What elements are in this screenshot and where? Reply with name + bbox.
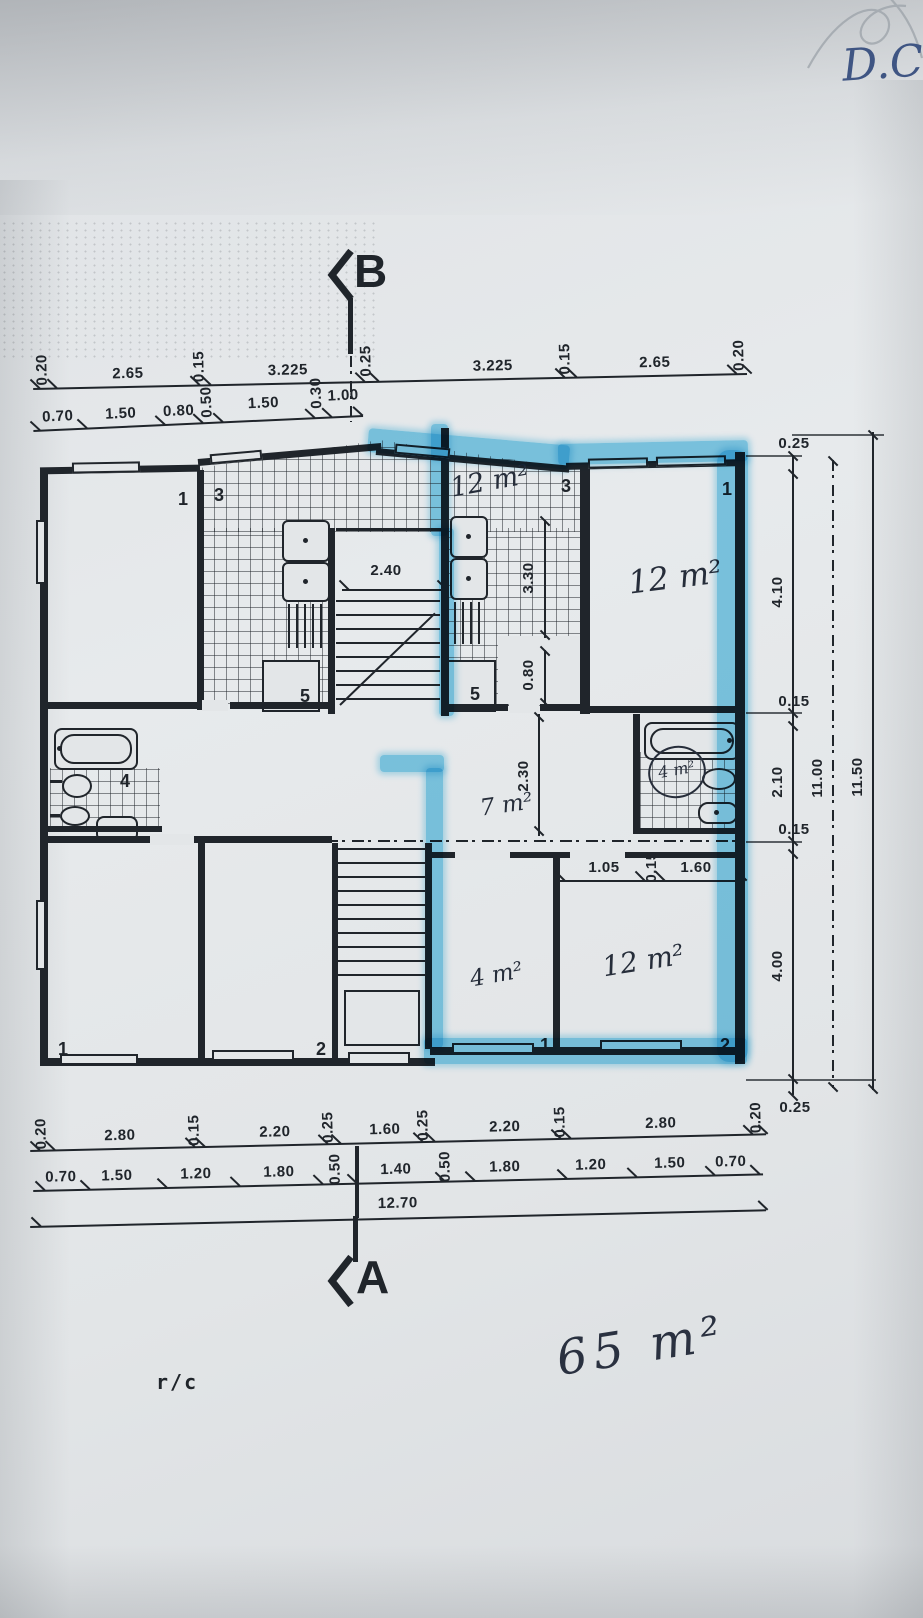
dim-label: 2.20 — [259, 1124, 291, 1141]
floor-plan-photo: D.C B 0.20 2.65 0.15 3.225 0.25 3.225 0.… — [0, 0, 923, 1618]
dim-label: 0.25 — [778, 436, 809, 453]
dim-label: 0.50 — [198, 386, 216, 418]
highlight-divider-kitchen — [439, 528, 454, 716]
section-marker-a: A — [326, 1250, 416, 1310]
sink-drain — [466, 534, 471, 539]
dim-label: 2.10 — [770, 766, 787, 797]
wall-kitchen-bottom-a — [448, 704, 508, 711]
paper-shade-left — [0, 180, 70, 1618]
room-number: 3 — [214, 486, 224, 504]
dim-line — [792, 455, 794, 1095]
highlight-bottom-wall — [424, 1038, 747, 1064]
wall-kitchen-right — [580, 464, 590, 714]
dim-label: 0.15 — [778, 694, 809, 711]
dim-label: 0.80 — [521, 659, 538, 690]
stair-landing-wall — [336, 528, 446, 531]
dim-label: 1.50 — [247, 395, 279, 413]
dim-label: 0.25 — [320, 1111, 337, 1143]
dim-label: 0.20 — [33, 1118, 50, 1150]
entry-box — [344, 990, 420, 1046]
window — [212, 1050, 294, 1061]
dim-line — [342, 589, 444, 591]
dim-chain-right-overall: 11.50 — [866, 432, 884, 1102]
dim-label: 2.65 — [112, 366, 144, 383]
dim-label: 0.15 — [644, 851, 661, 882]
dim-label: 0.50 — [327, 1153, 344, 1185]
room-area-note: 12 m² — [600, 938, 686, 983]
room-number: 1 — [58, 1040, 68, 1058]
dim-label: 3.225 — [473, 358, 513, 375]
dim-label: 1.60 — [369, 1122, 401, 1139]
room-number: 3 — [561, 477, 571, 495]
room-number: 1 — [178, 490, 188, 508]
vent-lines — [288, 604, 328, 648]
dim-label: 0.15 — [778, 822, 809, 839]
room-area-note: 12 m² — [626, 552, 724, 601]
window — [36, 520, 46, 584]
chevron-left-icon — [326, 1254, 354, 1308]
highlight-divider-upper — [431, 424, 448, 536]
dim-label: 3.30 — [521, 562, 538, 593]
dim-extension — [792, 434, 884, 436]
section-letter-b: B — [354, 248, 387, 294]
dim-label: 0.25 — [415, 1109, 432, 1141]
wall-bath-left-bottom — [46, 826, 162, 832]
dim-line — [538, 714, 540, 836]
window — [36, 900, 46, 970]
section-marker-b: B — [326, 246, 416, 306]
dim-label: 2.80 — [645, 1115, 677, 1132]
dim-extension — [746, 712, 802, 714]
dim-chain-bottom-total: 12.70 — [30, 1189, 770, 1232]
vent-lines — [454, 602, 486, 644]
section-letter-a: A — [356, 1254, 389, 1300]
wall-mid-left-b — [230, 702, 330, 709]
dim-label: 0.15 — [552, 1106, 569, 1138]
room-number: 5 — [470, 685, 480, 703]
dim-label: 1.80 — [489, 1159, 521, 1176]
handwriting-initials: D.C — [840, 35, 923, 92]
dim-label: 0.15 — [191, 351, 208, 383]
dim-label: 3.225 — [268, 362, 308, 379]
dim-label: 0.70 — [45, 1169, 77, 1186]
dim-extension — [746, 455, 802, 457]
dim-label: 0.15 — [557, 343, 574, 375]
section-axis-a-thin — [355, 1146, 359, 1218]
dim-chain-top-row2: 0.70 1.50 0.80 0.50 1.50 0.30 1.00 — [32, 393, 368, 436]
dim-label: 1.00 — [327, 387, 359, 405]
dim-line — [832, 460, 834, 1088]
dim-chain-top-row1: 0.20 2.65 0.15 3.225 0.25 3.225 0.15 2.6… — [33, 353, 753, 394]
dim-line — [872, 432, 874, 1090]
window — [72, 461, 140, 473]
dim-chain-bottom-row1: 0.20 2.80 0.15 2.20 0.25 1.60 0.25 2.20 … — [30, 1111, 770, 1154]
dim-label: 0.20 — [748, 1102, 765, 1134]
dim-line — [544, 650, 546, 706]
dim-label: 4.00 — [770, 950, 787, 981]
dim-label: 1.80 — [263, 1164, 295, 1181]
floor-label: r/c — [156, 1372, 198, 1392]
paper-shade-right — [853, 80, 923, 1618]
bidet — [60, 806, 90, 826]
highlight-divider-lower — [426, 768, 443, 1048]
dim-label: 0.80 — [163, 403, 195, 421]
wall-stair-left-upper — [328, 528, 335, 714]
wall-stair-left-lower — [332, 843, 338, 1060]
dim-label: 1.20 — [180, 1166, 212, 1183]
dim-label: 2.20 — [489, 1119, 521, 1136]
room-number: 4 — [120, 772, 130, 790]
dim-label: 0.25 — [358, 345, 375, 377]
door-opening — [202, 700, 228, 711]
room-number: 2 — [316, 1040, 326, 1058]
section-axis-b — [348, 298, 353, 354]
dim-line — [544, 520, 546, 638]
paper-shade-top — [0, 0, 923, 215]
sink-drain — [303, 579, 308, 584]
highlight-right-wall — [717, 450, 748, 1062]
dim-label: 0.30 — [308, 377, 326, 409]
room-area-note: 4 m² — [468, 958, 525, 993]
bidet-stub — [50, 814, 60, 817]
sink-drain — [466, 576, 471, 581]
dim-label: 1.50 — [654, 1155, 686, 1172]
dim-label: 4.10 — [770, 576, 787, 607]
sink-drain — [303, 538, 308, 543]
dim-label: 2.80 — [104, 1128, 136, 1145]
dim-label: 2.40 — [370, 563, 401, 580]
dim-label: 11.00 — [810, 758, 827, 797]
paper-shade-bottom — [0, 1545, 923, 1618]
door-opening — [455, 850, 510, 860]
chevron-left-icon — [326, 248, 354, 302]
wall-bath-right-left — [633, 714, 640, 834]
faucet — [57, 746, 62, 751]
dim-label: 1.40 — [380, 1161, 412, 1178]
window — [60, 1054, 138, 1065]
dim-label: 2.65 — [639, 355, 671, 372]
room-number: 5 — [300, 687, 310, 705]
dim-label: 0.70 — [715, 1154, 747, 1171]
stairs-lower — [338, 848, 426, 986]
bathtub-inner — [60, 734, 132, 764]
dim-label: 1.05 — [588, 860, 619, 877]
wall-room-divider-tl — [197, 470, 204, 710]
dim-label: 1.20 — [575, 1157, 607, 1174]
dim-label: 0.15 — [186, 1114, 203, 1146]
dim-chain-right-total: 11.00 — [826, 460, 844, 1100]
wall-mid-left-a — [40, 702, 202, 709]
dim-label: 0.20 — [34, 354, 51, 386]
wall-room-divider-bl — [198, 843, 205, 1060]
dim-label: 11.50 — [850, 757, 867, 796]
dim-label: 0.70 — [42, 408, 74, 426]
dim-label: 1.60 — [680, 860, 711, 877]
dim-label: 1.50 — [101, 1168, 133, 1185]
dim-extension — [746, 1079, 876, 1081]
toilet — [62, 774, 92, 798]
dim-label: 0.20 — [731, 339, 748, 371]
door-opening — [150, 834, 194, 845]
dim-label: 2.30 — [516, 760, 533, 791]
dim-label: 0.50 — [437, 1151, 454, 1183]
dim-extension — [746, 841, 802, 843]
entry-door — [348, 1052, 410, 1065]
room-area-note: 7 m² — [478, 788, 534, 821]
dim-chain-bottom-row2: 0.70 1.50 1.20 1.80 0.50 1.40 0.50 1.80 … — [33, 1151, 767, 1194]
dim-label: 1.50 — [105, 405, 137, 423]
dim-label: 0.25 — [779, 1100, 810, 1117]
dim-label-total: 12.70 — [378, 1195, 418, 1212]
toilet-tank — [50, 780, 62, 783]
total-area-note: 65 m² — [553, 1305, 731, 1387]
paper-speckle — [0, 220, 380, 360]
